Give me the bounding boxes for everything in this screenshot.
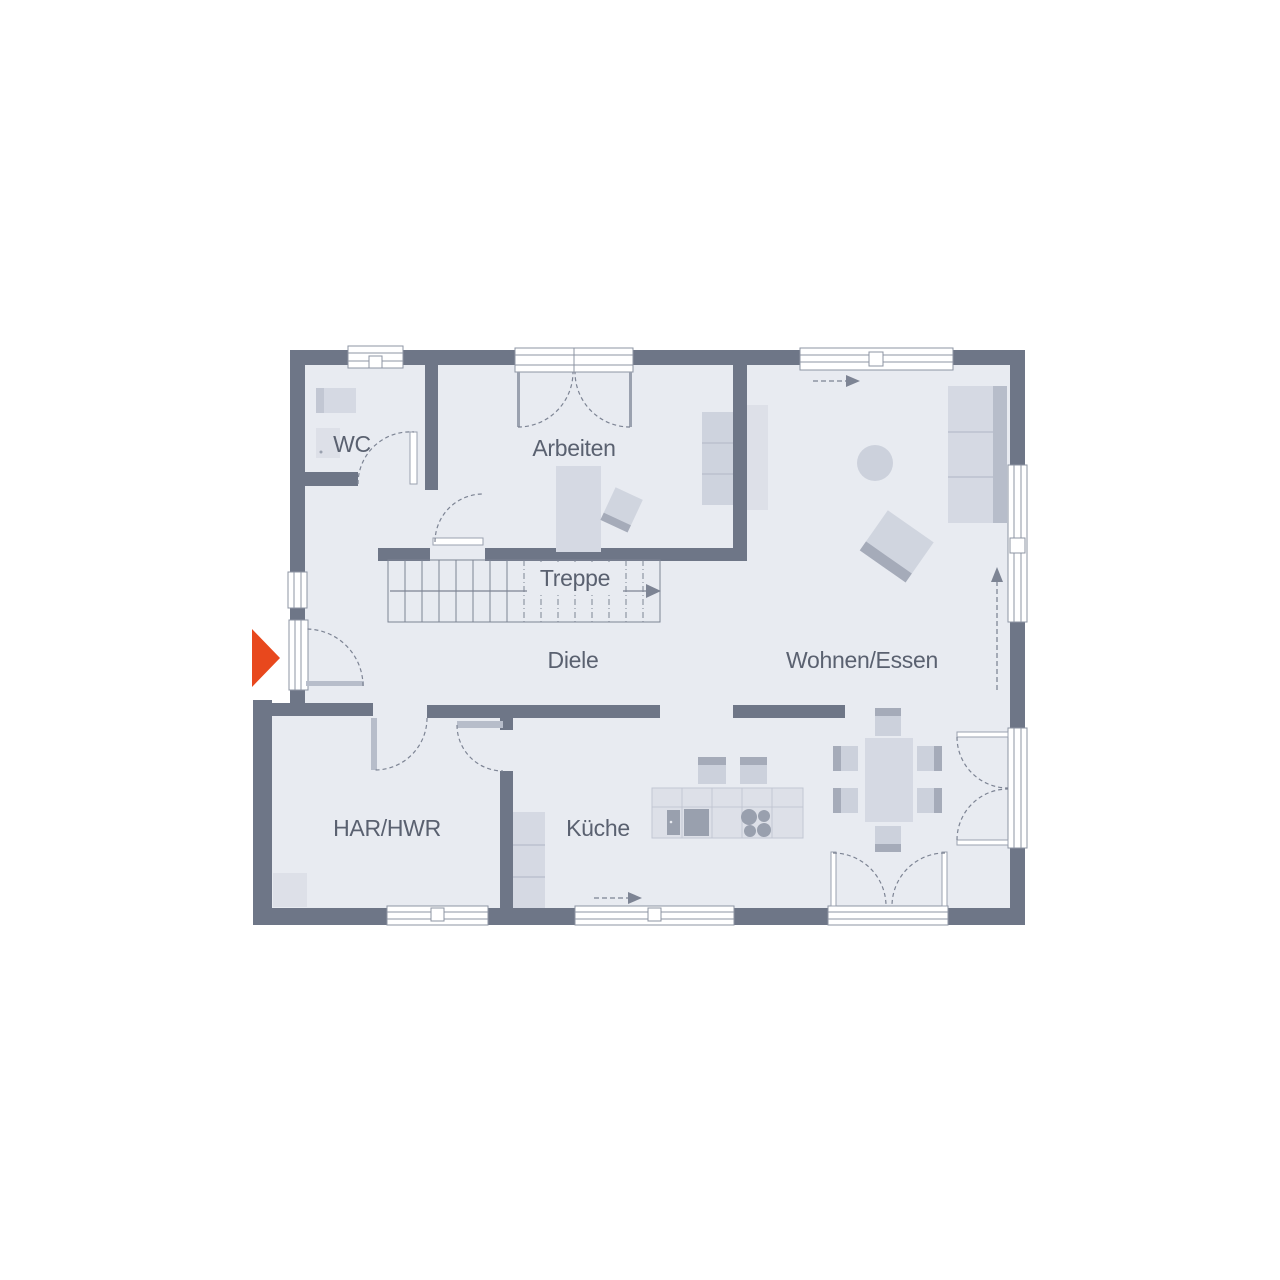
- door-leaf: [629, 372, 632, 427]
- utility-unit: [273, 873, 307, 907]
- toilet: [324, 388, 356, 413]
- dining-table: [865, 738, 913, 822]
- washbasin-drain: [320, 451, 323, 454]
- dining-chair: [917, 746, 942, 771]
- room-label-har-hwr: HAR/HWR: [333, 815, 441, 841]
- toilet-cistern: [316, 388, 324, 413]
- desk: [556, 466, 601, 552]
- wall-arbeiten-wohnen: [733, 350, 747, 561]
- wall-wc-bottom: [305, 472, 358, 486]
- floor-plan-page: WC Arbeiten Treppe Diele Wohnen/Essen HA…: [0, 0, 1280, 1280]
- wall-har-top: [253, 703, 373, 716]
- wall-har-kueche: [500, 771, 513, 908]
- wall-har-left: [253, 700, 272, 925]
- window-bottom-har: [387, 906, 488, 925]
- side-table: [857, 445, 893, 481]
- dining-chair: [917, 788, 942, 813]
- room-label-wc: WC: [333, 431, 371, 457]
- window-right: [1008, 465, 1027, 622]
- window-top-wc: [348, 346, 403, 368]
- kitchen-counter: [652, 788, 803, 838]
- sofa: [948, 386, 1007, 523]
- window-left: [288, 572, 307, 608]
- dishwasher: [667, 810, 680, 835]
- room-label-wohnen-essen: Wohnen/Essen: [786, 647, 938, 673]
- dining-chair: [875, 708, 901, 736]
- room-label-diele: Diele: [548, 647, 599, 673]
- wall-kueche-wohnen-stub: [733, 705, 845, 718]
- tall-cabinet: [513, 812, 545, 908]
- wall-stairs-top-right: [485, 548, 747, 561]
- door-leaf: [517, 372, 520, 427]
- triangle-right-icon: [252, 629, 280, 687]
- entrance-door-leaf: [306, 681, 364, 686]
- window-top-wohnen: [800, 348, 953, 370]
- room-label-kueche: Küche: [566, 815, 630, 841]
- wall-stairs-top-left: [378, 548, 430, 561]
- room-label-treppe: Treppe: [540, 565, 610, 591]
- door-leaf: [831, 852, 836, 906]
- dining-chair: [875, 826, 901, 852]
- bookshelf: [702, 412, 733, 505]
- door-leaf: [942, 852, 947, 906]
- door-leaf: [957, 732, 1008, 737]
- door-leaf: [957, 840, 1008, 845]
- bar-stool: [740, 757, 767, 784]
- dining-chair: [833, 746, 858, 771]
- wall-wc-right: [425, 350, 438, 490]
- bar-stool: [698, 757, 726, 784]
- room-label-arbeiten: Arbeiten: [532, 435, 615, 461]
- wall-diele-kueche: [427, 705, 660, 718]
- sideboard: [747, 405, 768, 510]
- window-bottom-kueche: [575, 906, 734, 925]
- har-furniture: [273, 873, 307, 907]
- dining-chair: [833, 788, 858, 813]
- oven: [684, 809, 709, 836]
- floor-plan-drawing: WC Arbeiten Treppe Diele Wohnen/Essen HA…: [0, 0, 1280, 1280]
